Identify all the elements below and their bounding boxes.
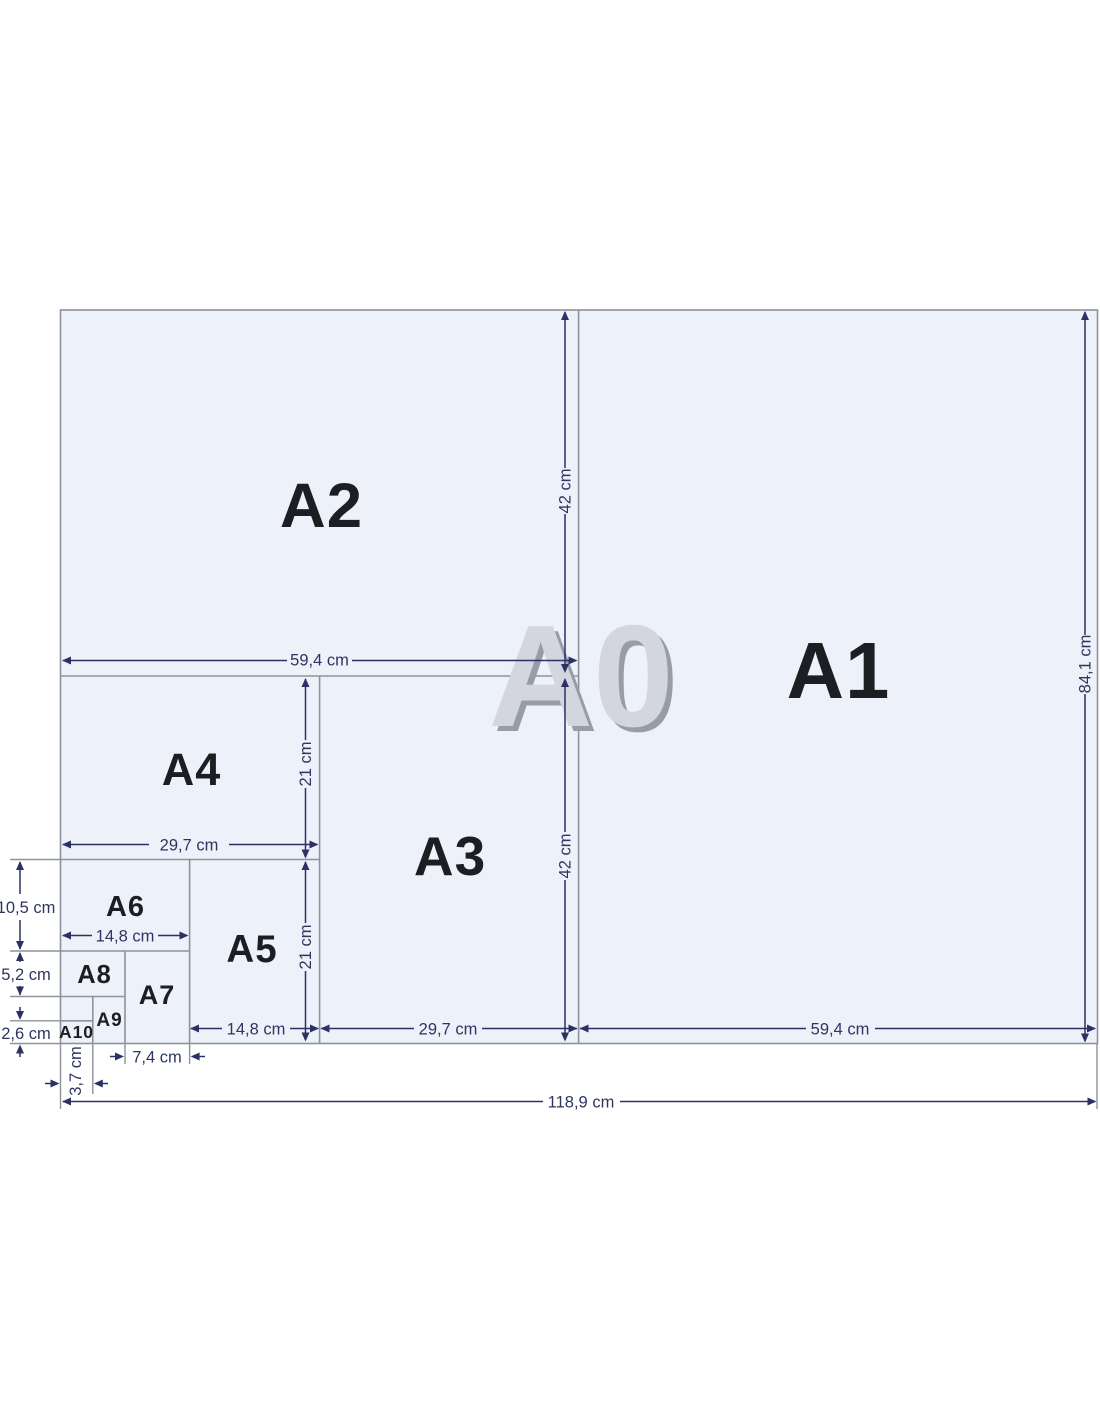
svg-text:21 cm: 21 cm — [297, 925, 315, 970]
svg-text:5,2 cm: 5,2 cm — [1, 966, 51, 984]
svg-text:A5: A5 — [226, 928, 277, 971]
svg-text:14,8 cm: 14,8 cm — [96, 928, 155, 946]
svg-text:59,4 cm: 59,4 cm — [290, 652, 349, 670]
svg-text:A1: A1 — [787, 626, 891, 715]
svg-text:2,6 cm: 2,6 cm — [1, 1025, 51, 1043]
svg-text:29,7 cm: 29,7 cm — [419, 1021, 478, 1039]
svg-text:21 cm: 21 cm — [297, 742, 315, 787]
svg-text:14,8 cm: 14,8 cm — [227, 1021, 286, 1039]
svg-text:A8: A8 — [77, 961, 112, 989]
svg-text:A4: A4 — [162, 744, 222, 795]
svg-text:42 cm: 42 cm — [557, 834, 575, 879]
svg-text:59,4 cm: 59,4 cm — [811, 1021, 870, 1039]
svg-text:A2: A2 — [280, 471, 363, 541]
svg-text:A7: A7 — [139, 980, 176, 1010]
svg-text:A3: A3 — [414, 825, 486, 887]
svg-text:A6: A6 — [106, 891, 145, 923]
svg-text:10,5 cm: 10,5 cm — [0, 899, 55, 917]
svg-text:A9: A9 — [96, 1010, 122, 1031]
svg-text:29,7 cm: 29,7 cm — [160, 837, 219, 855]
svg-text:84,1 cm: 84,1 cm — [1077, 635, 1095, 694]
svg-text:3,7 cm: 3,7 cm — [67, 1046, 85, 1096]
svg-text:A0: A0 — [488, 595, 673, 757]
svg-text:42 cm: 42 cm — [557, 469, 575, 514]
svg-text:118,9 cm: 118,9 cm — [548, 1094, 615, 1112]
svg-text:7,4 cm: 7,4 cm — [132, 1049, 182, 1067]
svg-text:A10: A10 — [59, 1022, 94, 1042]
